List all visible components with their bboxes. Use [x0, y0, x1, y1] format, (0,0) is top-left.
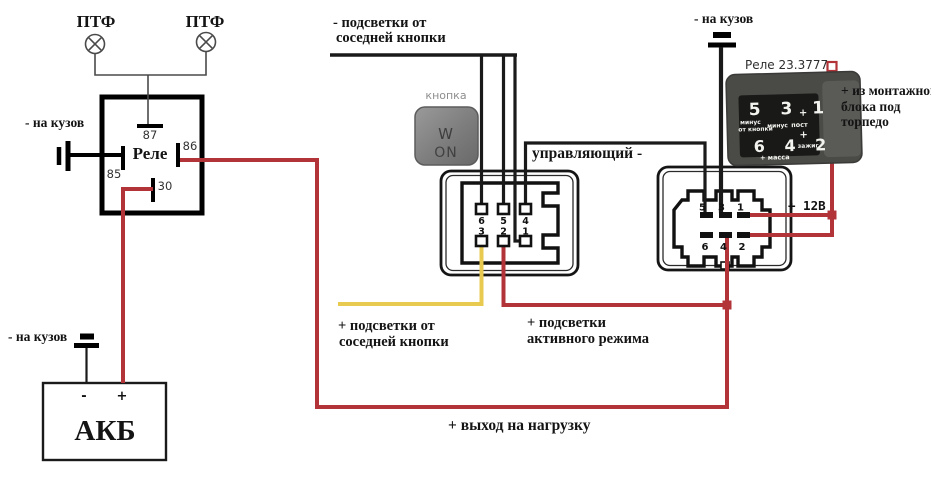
- battery-minus-terminal: -: [81, 389, 86, 404]
- relay-pin86-label: 86: [183, 139, 198, 153]
- note-active-mode-1: + подсветки: [527, 315, 606, 331]
- junction-dot: [828, 211, 837, 220]
- mid-pin-3: [476, 236, 487, 246]
- right-pin-4: [719, 232, 732, 238]
- push-button-on-label: ON: [434, 145, 458, 161]
- relay-label: Реле: [133, 144, 168, 163]
- right-pin5-label: 5: [699, 203, 706, 214]
- relay-photo-caption: Реле 23.3777: [745, 58, 828, 72]
- right-pin1-label: 1: [737, 203, 744, 214]
- note-output-load: + выход на нагрузку: [448, 417, 591, 434]
- mid-pin-2: [498, 236, 509, 246]
- right-pin4-label: 4: [720, 242, 727, 253]
- mid-pin-5: [498, 204, 509, 214]
- mid-pin-6: [476, 204, 487, 214]
- connector-middle: [441, 171, 578, 275]
- relay-photo-mass: + масса: [760, 153, 790, 162]
- note-plus-backlight-1: + подсветки от: [338, 318, 435, 334]
- note-control-minus: управляющий -: [532, 145, 642, 162]
- junction-dot: [723, 301, 732, 310]
- relay-photo-ignition: зажиг: [798, 142, 819, 150]
- right-pin3-label: 3: [718, 203, 725, 214]
- mid-pin2-label: 2: [500, 227, 507, 238]
- mid-pin3-label: 3: [478, 227, 485, 238]
- note-plus-12v: + 12В: [788, 198, 826, 213]
- note-plus-backlight-2: соседней кнопки: [339, 334, 449, 350]
- ground-battery-label: - на кузов: [8, 329, 67, 344]
- relay-photo-minus-mid: минус: [767, 122, 788, 130]
- note-mounting-2: блока под: [841, 99, 901, 114]
- relay-pin87-label: 87: [143, 128, 158, 142]
- mid-pin-4: [520, 204, 531, 214]
- relay-photo-post: пост: [791, 121, 808, 129]
- relay-photo-plus-top: +: [799, 108, 808, 119]
- mid-pin5-label: 5: [500, 216, 507, 227]
- fog-lamp-right-label: ПТФ: [186, 12, 225, 31]
- relay-photo-pins-top: 5 3 1: [749, 98, 832, 120]
- note-minus-backlight-1: - подсветки от: [333, 15, 426, 31]
- push-button: W ON: [415, 107, 478, 165]
- battery-plus-terminal: +: [117, 389, 128, 404]
- mid-pin1-label: 1: [522, 227, 529, 238]
- right-pin6-label: 6: [702, 242, 709, 253]
- note-mounting-3: торпедо: [841, 114, 889, 129]
- wire-battery-plus-to-pin30: [123, 189, 153, 383]
- plus12v-source-terminal: [828, 62, 837, 71]
- ground-top-right: [708, 35, 736, 45]
- fog-lamp-circuit: [86, 33, 216, 100]
- note-active-mode-2: активного режима: [527, 331, 650, 347]
- battery-label: АКБ: [74, 415, 135, 447]
- note-mounting-1: + из монтажного: [841, 83, 931, 98]
- right-pin2-label: 2: [739, 242, 746, 253]
- right-pin-6: [700, 232, 713, 238]
- connector-right: [658, 167, 791, 270]
- ground-top-right-label: - на кузов: [694, 11, 753, 26]
- relay-pin30-label: 30: [158, 179, 173, 193]
- button-caption: кнопка: [425, 89, 466, 102]
- ground-relay-label: - на кузов: [25, 115, 84, 130]
- mid-pin6-label: 6: [478, 216, 485, 227]
- mid-pin-1: [520, 236, 531, 246]
- fog-lamp-bus-wire: [95, 52, 206, 76]
- relay-pin85-label: 85: [107, 167, 122, 181]
- wiring-diagram: W ON 5 3 1 + минус от кнопки минус пост …: [0, 0, 931, 484]
- right-pin-2: [737, 232, 750, 238]
- fog-lamp-left-label: ПТФ: [77, 12, 116, 31]
- push-button-w-label: W: [438, 125, 454, 143]
- mid-pin4-label: 4: [522, 216, 529, 227]
- note-minus-backlight-2: соседней кнопки: [336, 30, 446, 46]
